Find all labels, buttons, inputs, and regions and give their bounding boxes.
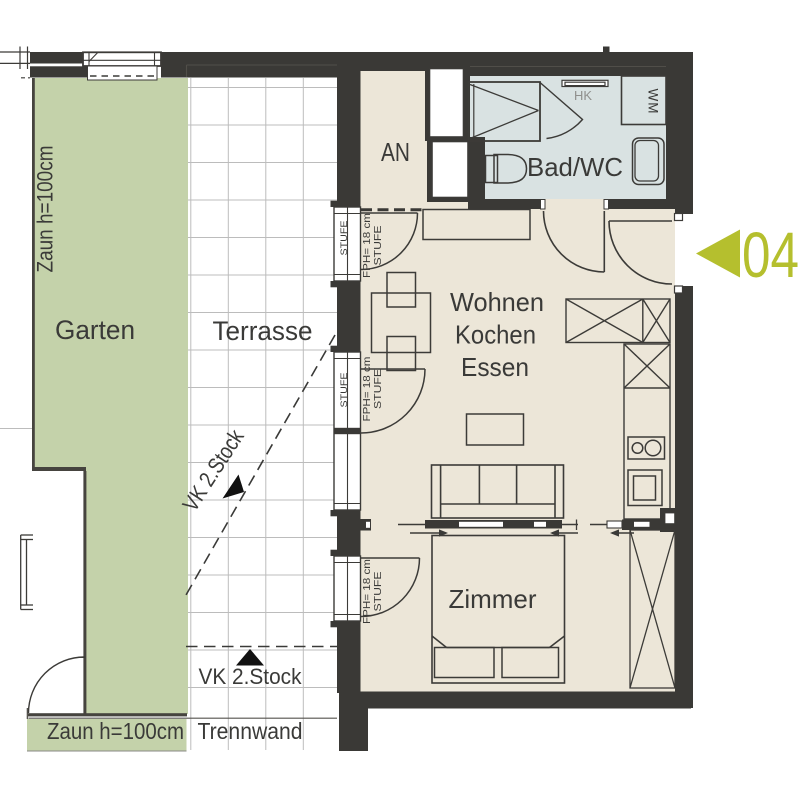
svg-text:Terrasse: Terrasse xyxy=(213,316,313,346)
svg-text:STUFE: STUFE xyxy=(372,226,384,266)
svg-text:Essen: Essen xyxy=(461,352,529,382)
svg-text:Kochen: Kochen xyxy=(455,320,536,350)
svg-text:Zaun h=100cm: Zaun h=100cm xyxy=(47,718,184,744)
svg-text:WM: WM xyxy=(646,89,661,115)
svg-text:VK 2.Stock: VK 2.Stock xyxy=(199,664,303,689)
svg-text:04: 04 xyxy=(742,219,799,291)
svg-text:Zimmer: Zimmer xyxy=(449,584,537,614)
svg-text:Zaun h=100cm: Zaun h=100cm xyxy=(33,146,58,273)
svg-text:STUFE: STUFE xyxy=(339,373,350,408)
svg-text:Wohnen: Wohnen xyxy=(450,287,544,317)
svg-text:STUFE: STUFE xyxy=(372,572,384,612)
svg-text:Bad/WC: Bad/WC xyxy=(527,152,623,182)
svg-text:Garten: Garten xyxy=(55,315,135,345)
svg-text:AN: AN xyxy=(381,137,410,167)
svg-text:Trennwand: Trennwand xyxy=(198,718,303,744)
svg-text:HK: HK xyxy=(574,88,592,103)
svg-text:STUFE: STUFE xyxy=(372,369,384,409)
svg-text:VK 2.Stock: VK 2.Stock xyxy=(178,425,249,516)
svg-text:STUFE: STUFE xyxy=(339,221,350,256)
